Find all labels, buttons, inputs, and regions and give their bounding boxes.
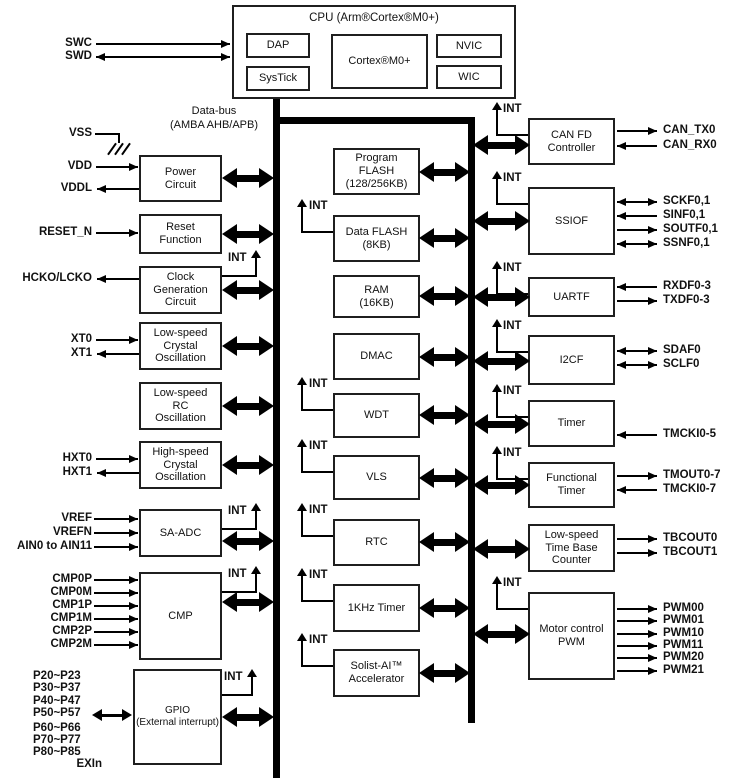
bus-arrow-cmp: [222, 592, 274, 612]
block-cmp: CMP: [139, 572, 222, 660]
int-label-uartf: INT: [503, 262, 522, 274]
pin-label-p40-p47: P40~P47: [33, 695, 93, 708]
int-riser-ssiof: [496, 179, 498, 205]
block-motor-control-pwm: Motor control PWM: [528, 592, 615, 680]
pin-label-swc: SWC: [0, 37, 92, 50]
vdd-arrow: [96, 163, 138, 171]
int-line-vls: [302, 471, 333, 473]
bus-arrow-wdt: [419, 405, 470, 425]
soutf-arrow: [617, 226, 657, 234]
int-riser-dflash: [301, 207, 303, 233]
cmp1p-arrow: [94, 602, 138, 610]
int-tip-uartf: [492, 261, 502, 269]
int-tip-clock: [251, 250, 261, 258]
tmcki5-arrow: [617, 431, 657, 439]
pin-label-sdaf: SDAF0: [663, 344, 701, 357]
cpu-systick-block: SysTick: [246, 66, 310, 91]
bus-arrow-solist: [419, 663, 470, 683]
pin-label-pwm20: PWM20: [663, 651, 704, 664]
int-tip-cmp: [251, 566, 261, 574]
bus-arrow-hsxtal: [222, 455, 274, 475]
pwm11-arrow: [617, 642, 657, 650]
block-1khz-timer: 1KHz Timer: [333, 584, 420, 632]
bus-arrow-ram: [419, 286, 470, 306]
int-line-rtc: [302, 535, 333, 537]
vrefn-arrow: [94, 529, 138, 537]
int-riser-rtc: [301, 511, 303, 537]
block-gpio: GPIO (External interrupt): [133, 669, 222, 765]
pwm10-arrow: [617, 630, 657, 638]
left-data-bus: [273, 99, 280, 778]
int-label-dflash: INT: [309, 200, 328, 212]
block-solist-ai-accelerator: Solist-AI™ Accelerator: [333, 649, 420, 697]
int-line-khz: [302, 600, 333, 602]
bus-arrow-rtc: [419, 532, 470, 552]
vref-arrow: [94, 515, 138, 523]
ain-arrow: [94, 543, 138, 551]
pin-label-p80-p85: P80~P85: [33, 746, 93, 759]
int-label-timer: INT: [503, 385, 522, 397]
block-lowspeed-rc-osc: Low-speed RC Oscillation: [139, 382, 222, 430]
int-riser-i2cf: [496, 327, 498, 353]
bus-arrow-lsxtal: [222, 336, 274, 356]
bus-arrow-mcpwm: [473, 624, 530, 644]
bus-arrow-i2cf: [473, 351, 530, 371]
pin-label-p50-p57: P50~P57: [33, 707, 93, 720]
int-line-ssiof: [497, 203, 528, 205]
int-tip-ftimer: [492, 446, 502, 454]
tmcki7-arrow: [617, 486, 657, 494]
pin-label-cmp0p: CMP0P: [0, 573, 92, 586]
pin-label-cmp1p: CMP1P: [0, 599, 92, 612]
pin-label-p20-p23: P20~P23: [33, 670, 93, 683]
ground-symbol: [105, 141, 133, 157]
pin-label-tmcki0-5: TMCKI0-5: [663, 428, 716, 441]
pin-label-tmcki0-7: TMCKI0-7: [663, 483, 716, 496]
cpu-dap-block: DAP: [246, 33, 310, 58]
block-lowspeed-timebase-counter: Low-speed Time Base Counter: [528, 524, 615, 572]
int-label-ftimer: INT: [503, 447, 522, 459]
pin-label-pwm00: PWM00: [663, 602, 704, 615]
int-riser-clock: [255, 258, 257, 276]
pin-label-hxt1: HXT1: [0, 466, 92, 479]
pin-label-vref: VREF: [0, 512, 92, 525]
xt1-arrow: [97, 350, 139, 358]
pin-label-pwm11: PWM11: [663, 639, 703, 652]
canrx-arrow: [617, 142, 657, 150]
cmp1m-arrow: [94, 615, 138, 623]
hxt0-arrow: [96, 455, 138, 463]
cmp2m-arrow: [94, 641, 138, 649]
cpu-wic-block: WIC: [436, 65, 502, 89]
block-highspeed-crystal-osc: High-speed Crystal Oscillation: [139, 441, 222, 489]
pin-label-vrefn: VREFN: [0, 526, 92, 539]
block-ssiof: SSIOF: [528, 187, 615, 255]
swd-arrow: [96, 53, 230, 61]
block-wdt: WDT: [333, 393, 420, 438]
int-riser-mcpwm: [496, 584, 498, 610]
bus-arrow-dflash: [419, 228, 470, 248]
int-tip-saadc: [251, 503, 261, 511]
int-label-cmp: INT: [228, 568, 247, 580]
block-ram: RAM (16KB): [333, 275, 420, 318]
txdf-arrow: [617, 297, 657, 305]
int-tip-mcpwm: [492, 576, 502, 584]
pwm01-arrow: [617, 617, 657, 625]
pin-label-cmp0m: CMP0M: [0, 586, 92, 599]
pin-label-tbcout1: TBCOUT1: [663, 546, 717, 559]
pin-label-p30-p37: P30~P37: [33, 682, 93, 695]
tbcout1-arrow: [617, 549, 657, 557]
reset-arrow: [96, 229, 138, 237]
int-tip-dflash: [297, 199, 307, 207]
cpu-title: CPU (Arm®Cortex®M0+): [232, 11, 516, 25]
pin-label-cmp2p: CMP2P: [0, 625, 92, 638]
bus-arrow-saadc: [222, 531, 274, 551]
block-lowspeed-crystal-osc: Low-speed Crystal Oscillation: [139, 322, 222, 370]
int-tip-vls: [297, 439, 307, 447]
int-line-clock: [222, 275, 257, 277]
pin-label-rxdf: RXDF0-3: [663, 280, 711, 293]
int-label-vls: INT: [309, 440, 328, 452]
pin-label-cmp1m: CMP1M: [0, 612, 92, 625]
cpu-nvic-block: NVIC: [436, 34, 502, 58]
block-sa-adc: SA-ADC: [139, 509, 222, 557]
bus-arrow-reset: [222, 224, 274, 244]
pin-label-pwm10: PWM10: [663, 627, 704, 640]
cantx-arrow: [617, 127, 657, 135]
int-label-canfd: INT: [503, 103, 522, 115]
pin-label-can-tx0: CAN_TX0: [663, 124, 715, 137]
cpu-core-block: Cortex®M0+: [331, 34, 428, 89]
int-tip-timer: [492, 384, 502, 392]
mcu-block-diagram: Data-bus (AMBA AHB/APB) CPU (Arm®Cortex®…: [0, 0, 729, 784]
pwm00-arrow: [617, 605, 657, 613]
block-vls: VLS: [333, 455, 420, 500]
int-riser-canfd: [496, 110, 498, 136]
int-label-gpio: INT: [224, 671, 243, 683]
int-riser-khz: [301, 576, 303, 602]
int-tip-solist: [297, 633, 307, 641]
int-label-ssiof: INT: [503, 172, 522, 184]
bus-arrow-gpio: [222, 707, 274, 727]
bus-arrow-pflash: [419, 162, 470, 182]
bus-arrow-khz: [419, 598, 470, 618]
pin-label-can-rx0: CAN_RX0: [663, 139, 717, 152]
pin-label-tbcout0: TBCOUT0: [663, 532, 717, 545]
pin-label-exin: EXIn: [33, 758, 102, 771]
int-label-saadc: INT: [228, 505, 247, 517]
pwm21-arrow: [617, 667, 657, 675]
block-uartf: UARTF: [528, 277, 615, 317]
int-line-wdt: [302, 409, 333, 411]
pwm20-arrow: [617, 654, 657, 662]
int-label-wdt: INT: [309, 378, 328, 390]
hcko-arrow: [97, 275, 139, 283]
bus-arrow-ftimer: [473, 475, 530, 495]
int-label-khz: INT: [309, 569, 328, 581]
hxt1-arrow: [97, 469, 139, 477]
sckf-arrow: [617, 198, 657, 206]
pin-label-ssnf: SSNF0,1: [663, 237, 710, 250]
int-tip-i2cf: [492, 319, 502, 327]
vddl-arrow: [97, 185, 139, 193]
bus-arrow-vls: [419, 468, 470, 488]
int-line-solist: [302, 665, 333, 667]
sdaf-arrow: [617, 347, 657, 355]
int-label-solist: INT: [309, 634, 328, 646]
pin-label-reset-n: RESET_N: [0, 226, 92, 239]
int-riser-saadc: [255, 511, 257, 529]
block-rtc: RTC: [333, 519, 420, 566]
int-riser-wdt: [301, 385, 303, 411]
pin-label-xt1: XT1: [0, 347, 92, 360]
cmp2p-arrow: [94, 628, 138, 636]
swc-arrow: [96, 40, 230, 48]
pin-label-xt0: XT0: [0, 333, 92, 346]
int-label-i2cf: INT: [503, 320, 522, 332]
pin-label-hcko-lcko: HCKO/LCKO: [0, 272, 92, 285]
pin-label-sckf: SCKF0,1: [663, 195, 710, 208]
sinf-arrow: [617, 212, 657, 220]
block-i2cf: I2CF: [528, 335, 615, 385]
horizontal-data-bus: [273, 117, 475, 124]
pin-label-swd: SWD: [0, 50, 92, 63]
int-label-clock: INT: [228, 252, 247, 264]
gpio-port-arrow: [92, 709, 132, 721]
cmp0p-arrow: [94, 576, 138, 584]
block-reset-function: Reset Function: [139, 214, 222, 254]
bus-arrow-timer: [473, 414, 530, 434]
bus-arrow-ssiof: [473, 211, 530, 231]
bus-arrow-lstb: [473, 539, 530, 559]
ssnf-arrow: [617, 240, 657, 248]
block-power-circuit: Power Circuit: [139, 155, 222, 202]
vss-line: [95, 133, 120, 135]
pin-label-p60-p66: P60~P66: [33, 722, 93, 735]
pin-label-hxt0: HXT0: [0, 452, 92, 465]
pin-label-p70-p77: P70~P77: [33, 734, 93, 747]
block-timer: Timer: [528, 400, 615, 447]
pin-label-tmout0-7: TMOUT0-7: [663, 469, 721, 482]
int-line-dflash: [302, 231, 333, 233]
block-can-fd-controller: CAN FD Controller: [528, 118, 615, 165]
pin-label-ain: AIN0 to AIN11: [0, 540, 92, 553]
pin-label-sclf: SCLF0: [663, 358, 699, 371]
int-tip-ssiof: [492, 171, 502, 179]
bus-arrow-canfd: [473, 135, 530, 155]
block-functional-timer: Functional Timer: [528, 462, 615, 508]
bus-arrow-dmac: [419, 347, 470, 367]
block-program-flash: Program FLASH (128/256KB): [333, 148, 420, 195]
bus-arrow-power: [222, 168, 274, 188]
rxdf-arrow: [617, 283, 657, 291]
bus-arrow-uartf: [473, 287, 530, 307]
pin-label-soutf: SOUTF0,1: [663, 223, 718, 236]
cmp0m-arrow: [94, 589, 138, 597]
pin-label-cmp2m: CMP2M: [0, 638, 92, 651]
int-riser-solist: [301, 641, 303, 667]
int-line-saadc: [222, 528, 257, 530]
tbcout0-arrow: [617, 535, 657, 543]
int-tip-rtc: [297, 503, 307, 511]
int-riser-gpio: [251, 677, 253, 695]
block-data-flash: Data FLASH (8KB): [333, 215, 420, 262]
pin-label-vss: VSS: [0, 127, 92, 140]
int-line-mcpwm: [497, 608, 528, 610]
block-clock-generation: Clock Generation Circuit: [139, 266, 222, 314]
bus-arrow-clock: [222, 280, 274, 300]
int-tip-khz: [297, 568, 307, 576]
pin-label-pwm21: PWM21: [663, 664, 704, 677]
pin-label-sinf: SINF0,1: [663, 209, 705, 222]
pin-label-vddl: VDDL: [0, 182, 92, 195]
pin-label-pwm01: PWM01: [663, 614, 704, 627]
int-tip-canfd: [492, 102, 502, 110]
tmout-arrow: [617, 472, 657, 480]
int-line-gpio: [222, 694, 253, 696]
block-dmac: DMAC: [333, 333, 420, 380]
int-riser-cmp: [255, 574, 257, 592]
xt0-arrow: [96, 336, 138, 344]
bus-arrow-lsrc: [222, 396, 274, 416]
int-tip-wdt: [297, 377, 307, 385]
int-label-rtc: INT: [309, 504, 328, 516]
data-bus-label: Data-bus (AMBA AHB/APB): [160, 105, 268, 133]
int-label-mcpwm: INT: [503, 577, 522, 589]
pin-label-vdd: VDD: [0, 160, 92, 173]
int-riser-vls: [301, 447, 303, 473]
sclf-arrow: [617, 361, 657, 369]
pin-label-txdf: TXDF0-3: [663, 294, 710, 307]
int-tip-gpio: [247, 669, 257, 677]
